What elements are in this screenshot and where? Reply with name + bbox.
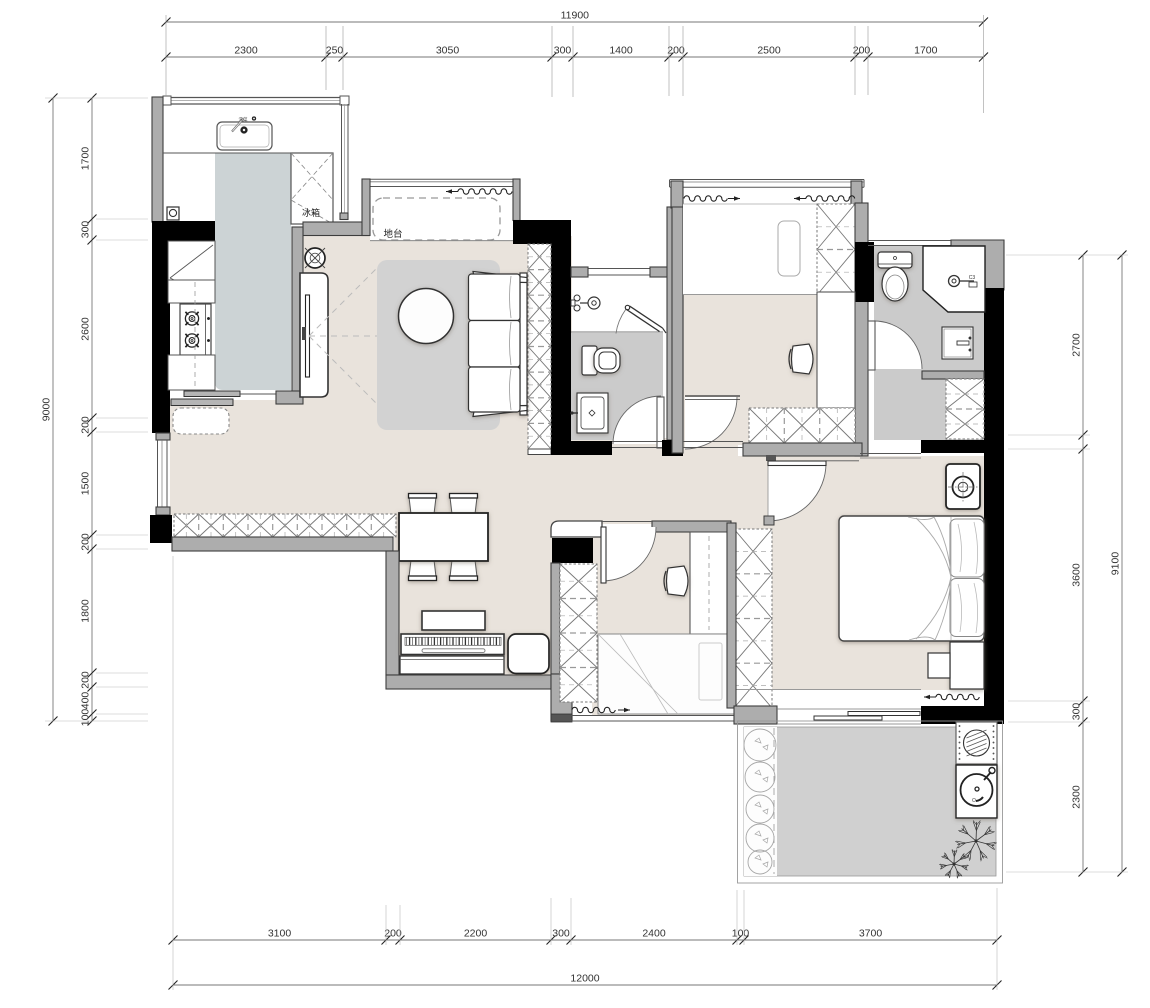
svg-text:200: 200	[80, 533, 92, 551]
svg-text:1700: 1700	[914, 45, 938, 57]
svg-text:2300: 2300	[234, 45, 258, 57]
svg-text:冰箱: 冰箱	[302, 207, 320, 218]
svg-text:250: 250	[326, 45, 344, 57]
svg-text:1700: 1700	[80, 147, 92, 171]
svg-text:1400: 1400	[609, 45, 633, 57]
svg-text:洗菜: 洗菜	[239, 116, 248, 123]
svg-text:100: 100	[80, 709, 92, 727]
svg-text:200: 200	[80, 416, 92, 434]
svg-text:2400: 2400	[642, 928, 666, 940]
svg-text:200: 200	[667, 45, 685, 57]
svg-text:300: 300	[552, 928, 570, 940]
svg-text:12000: 12000	[570, 973, 599, 985]
svg-text:9100: 9100	[1110, 552, 1122, 576]
svg-text:1500: 1500	[80, 472, 92, 496]
svg-text:3100: 3100	[268, 928, 292, 940]
svg-text:300: 300	[80, 221, 92, 239]
svg-text:3600: 3600	[1071, 563, 1083, 587]
svg-text:300: 300	[554, 45, 572, 57]
svg-text:地台: 地台	[383, 228, 402, 240]
svg-text:9000: 9000	[41, 398, 53, 422]
svg-text:1800: 1800	[80, 599, 92, 623]
svg-text:11900: 11900	[561, 10, 590, 22]
svg-text:100: 100	[732, 928, 750, 940]
svg-text:C3: C3	[969, 275, 976, 281]
svg-text:2500: 2500	[757, 45, 781, 57]
svg-text:2200: 2200	[464, 928, 488, 940]
svg-text:200: 200	[80, 671, 92, 689]
svg-text:2600: 2600	[80, 317, 92, 341]
svg-text:400: 400	[80, 692, 92, 710]
svg-text:2300: 2300	[1071, 785, 1083, 809]
svg-text:200: 200	[384, 928, 402, 940]
svg-text:3700: 3700	[859, 928, 883, 940]
svg-text:2700: 2700	[1071, 333, 1083, 357]
svg-text:300: 300	[1071, 703, 1083, 721]
svg-text:3050: 3050	[436, 45, 460, 57]
